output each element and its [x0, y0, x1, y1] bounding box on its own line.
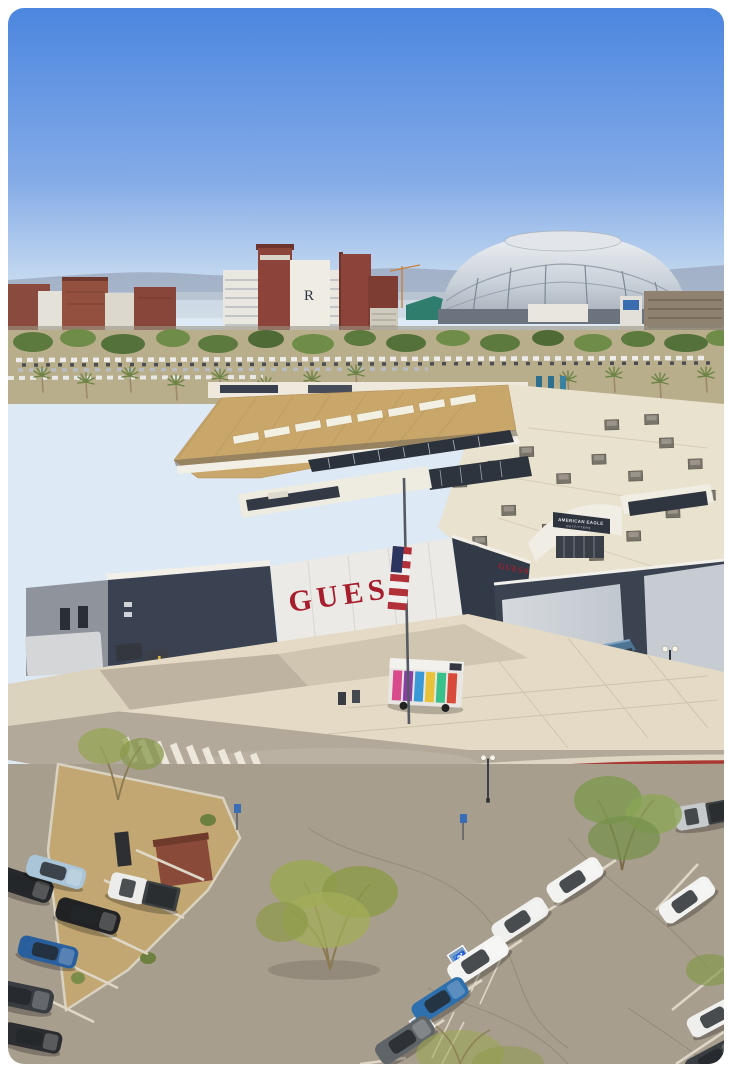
aerial-photo-card: R: [8, 8, 724, 1064]
tower-blue-sign: [623, 300, 639, 310]
parking-sign-blue-2: [460, 814, 467, 823]
trash-can-2: [352, 690, 360, 703]
food-truck: [387, 658, 466, 716]
parking-lot: ♿ ♿: [8, 728, 724, 1064]
parking-sign-blue: [234, 804, 241, 813]
trash-can: [338, 692, 346, 705]
hotel-monogram: R: [304, 288, 314, 304]
brick-monument-sign: [153, 832, 215, 887]
